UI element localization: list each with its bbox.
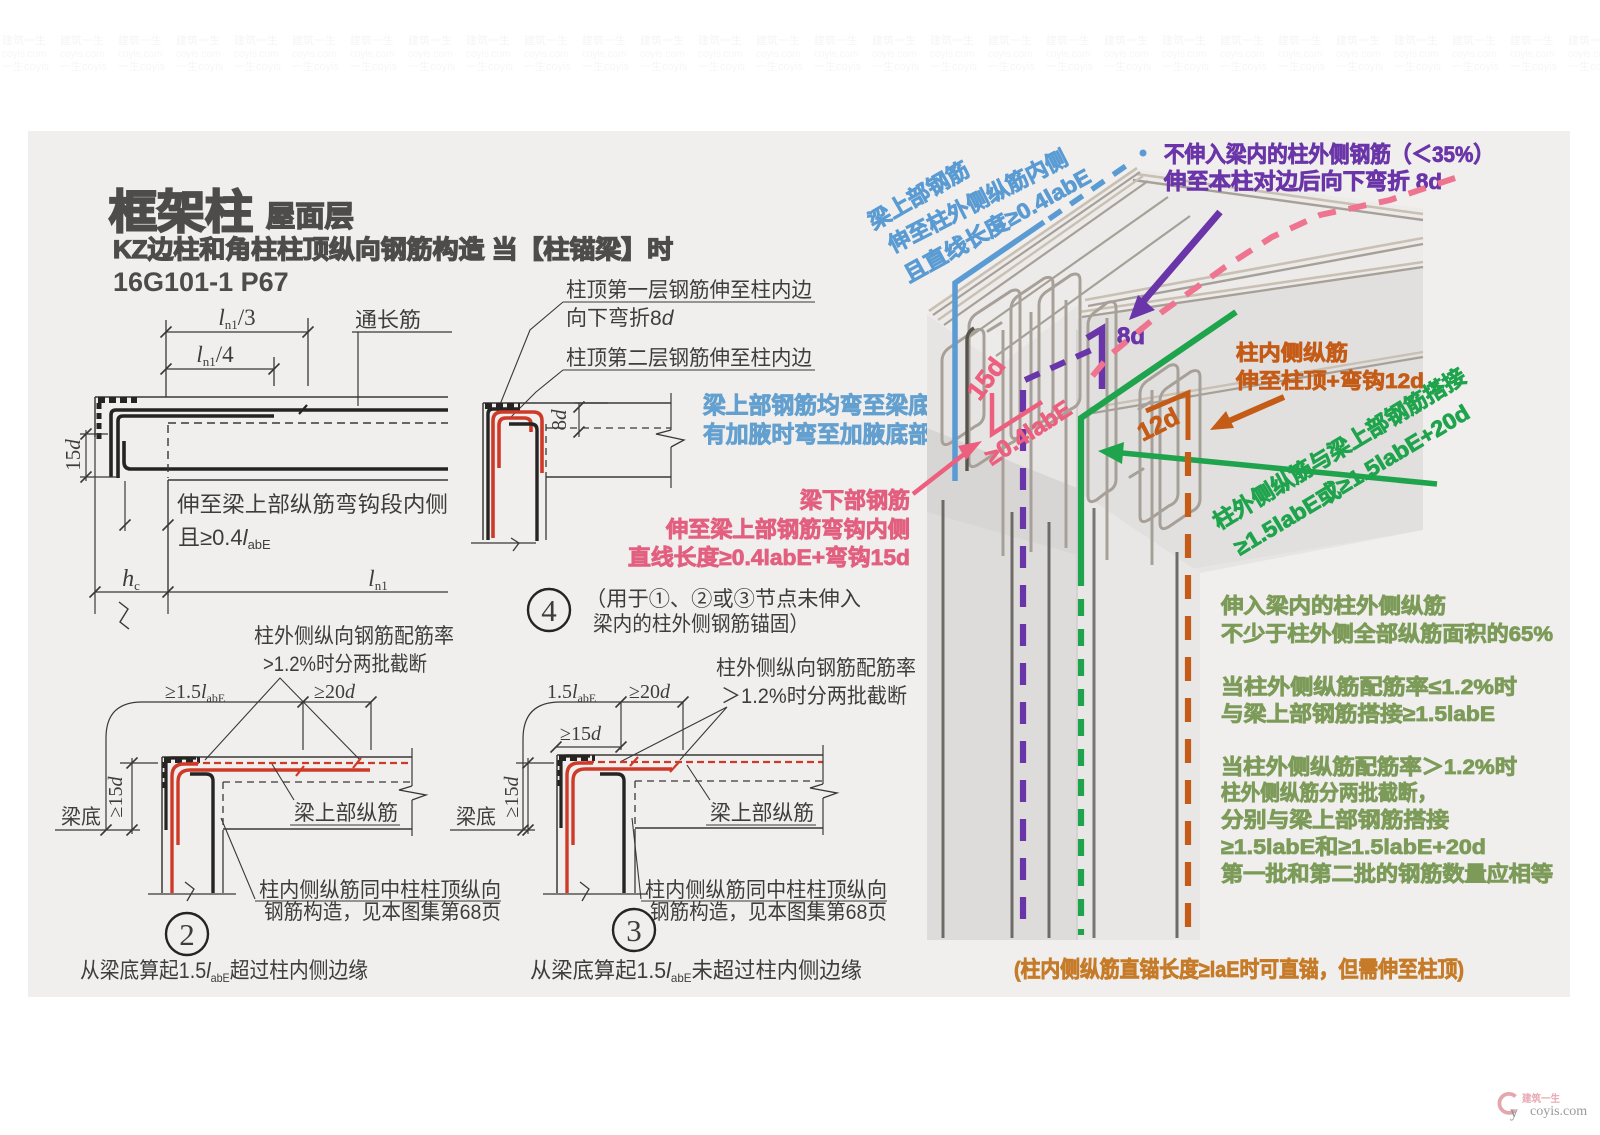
svg-text:15d: 15d: [61, 439, 85, 471]
svg-text:一生coyis: 一生coyis: [1568, 59, 1600, 73]
svg-text:当柱外侧纵筋配筋率≤1.2%时: 当柱外侧纵筋配筋率≤1.2%时: [1221, 675, 1517, 699]
svg-text:柱内侧纵筋: 柱内侧纵筋: [1236, 341, 1348, 365]
svg-text:coyis.com: coyis.com: [698, 49, 742, 60]
svg-text:≥20d: ≥20d: [629, 681, 671, 703]
svg-text:伸至梁上部纵筋弯钩段内侧: 伸至梁上部纵筋弯钩段内侧: [177, 492, 448, 517]
svg-text:建筑一生: 建筑一生: [1510, 33, 1554, 47]
svg-text:coyis.com: coyis.com: [292, 49, 336, 60]
svg-text:有加腋时弯至加腋底部: 有加腋时弯至加腋底部: [703, 421, 931, 447]
svg-text:建筑一生: 建筑一生: [1336, 33, 1380, 47]
svg-text:建筑一生: 建筑一生: [1394, 33, 1438, 47]
svg-text:梁上部纵筋: 梁上部纵筋: [710, 802, 814, 825]
svg-text:建筑一生: 建筑一生: [814, 33, 858, 47]
svg-text:一生coyis: 一生coyis: [118, 59, 166, 73]
svg-text:梁上部钢筋均弯至梁底: 梁上部钢筋均弯至梁底: [702, 392, 931, 418]
svg-text:一生coyis: 一生coyis: [176, 59, 224, 73]
svg-text:coyis.com: coyis.com: [1336, 49, 1380, 60]
svg-text:从梁底算起1.5labE未超过柱内侧边缘: 从梁底算起1.5labE未超过柱内侧边缘: [530, 958, 862, 985]
svg-text:一生coyis: 一生coyis: [466, 59, 514, 73]
svg-text:钢筋构造，见本图集第68页: 钢筋构造，见本图集第68页: [264, 901, 501, 924]
svg-text:coyis.com: coyis.com: [1104, 49, 1148, 60]
svg-text:一生coyis: 一生coyis: [1278, 59, 1326, 73]
svg-text:一生coyis: 一生coyis: [234, 59, 282, 73]
svg-text:不少于柱外侧全部纵筋面积的65%: 不少于柱外侧全部纵筋面积的65%: [1221, 622, 1553, 646]
svg-text:与梁上部钢筋搭接≥1.5labE: 与梁上部钢筋搭接≥1.5labE: [1221, 702, 1495, 726]
svg-text:coyis.com: coyis.com: [234, 49, 278, 60]
svg-text:coyis.com: coyis.com: [1162, 49, 1206, 60]
svg-text:直线长度≥0.4labE+弯钩15d: 直线长度≥0.4labE+弯钩15d: [628, 545, 910, 570]
svg-text:2: 2: [179, 917, 195, 952]
svg-text:coyis.com: coyis.com: [466, 49, 510, 60]
svg-text:当柱外侧纵筋配筋率＞1.2%时: 当柱外侧纵筋配筋率＞1.2%时: [1221, 755, 1517, 779]
svg-text:coyis.com: coyis.com: [524, 49, 568, 60]
svg-text:框架柱: 框架柱: [109, 186, 253, 238]
svg-text:建筑一生: 建筑一生: [292, 33, 336, 47]
svg-text:一生coyis: 一生coyis: [1104, 59, 1152, 73]
svg-text:建筑一生: 建筑一生: [176, 33, 220, 47]
svg-text:coyis.com: coyis.com: [1394, 49, 1438, 60]
svg-text:建筑一生: 建筑一生: [640, 33, 684, 47]
svg-text:≥15d: ≥15d: [560, 723, 602, 745]
svg-text:一生coyis: 一生coyis: [698, 59, 746, 73]
svg-text:建筑一生: 建筑一生: [1220, 33, 1264, 47]
svg-text:梁底: 梁底: [456, 806, 496, 829]
svg-text:coyis.com: coyis.com: [1452, 49, 1496, 60]
svg-text:建筑一生: 建筑一生: [524, 33, 568, 47]
svg-text:建筑一生: 建筑一生: [1278, 33, 1322, 47]
svg-text:>1.2%时分两批截断: >1.2%时分两批截断: [263, 653, 427, 676]
svg-text:coyis.com: coyis.com: [2, 49, 46, 60]
svg-text:建筑一生: 建筑一生: [1104, 33, 1148, 47]
svg-text:柱内侧纵筋同中柱柱顶纵向: 柱内侧纵筋同中柱柱顶纵向: [645, 879, 887, 902]
svg-text:coyis.com: coyis.com: [814, 49, 858, 60]
svg-text:coyis.com: coyis.com: [1220, 49, 1264, 60]
svg-text:KZ边柱和角柱柱顶纵向钢筋构造 当【柱锚梁】时: KZ边柱和角柱柱顶纵向钢筋构造 当【柱锚梁】时: [113, 235, 673, 264]
svg-text:＞1.2%时分两批截断: ＞1.2%时分两批截断: [721, 685, 907, 708]
svg-text:不伸入梁内的柱外侧钢筋（＜35%）: 不伸入梁内的柱外侧钢筋（＜35%）: [1164, 142, 1494, 167]
svg-text:coyis.com: coyis.com: [118, 49, 162, 60]
svg-text:3: 3: [626, 913, 642, 948]
svg-text:coyis.com: coyis.com: [408, 49, 452, 60]
svg-text:建筑一生: 建筑一生: [234, 33, 278, 47]
svg-text:屋面层: 屋面层: [266, 201, 354, 233]
svg-text:coyis.com: coyis.com: [930, 49, 974, 60]
svg-text:建筑一生: 建筑一生: [466, 33, 510, 47]
svg-text:向下弯折8d: 向下弯折8d: [566, 307, 675, 330]
svg-text:coyis.com: coyis.com: [1046, 49, 1090, 60]
svg-text:≥15d: ≥15d: [501, 776, 523, 818]
svg-text:一生coyis: 一生coyis: [582, 59, 630, 73]
svg-text:16G101-1 P67: 16G101-1 P67: [113, 267, 289, 297]
svg-text:建筑一生: 建筑一生: [930, 33, 974, 47]
svg-text:coyis.com: coyis.com: [1530, 1104, 1587, 1119]
svg-text:建筑一生: 建筑一生: [2, 33, 46, 47]
svg-text:建筑一生: 建筑一生: [1568, 33, 1600, 47]
svg-text:一生coyis: 一生coyis: [756, 59, 804, 73]
svg-text:一生coyis: 一生coyis: [930, 59, 978, 73]
svg-text:建筑一生: 建筑一生: [408, 33, 452, 47]
svg-text:ln1/4: ln1/4: [196, 342, 234, 369]
svg-text:ln1/3: ln1/3: [218, 305, 255, 332]
svg-text:建筑一生: 建筑一生: [1452, 33, 1496, 47]
svg-text:建筑一生: 建筑一生: [988, 33, 1032, 47]
svg-text:coyis.com: coyis.com: [988, 49, 1032, 60]
svg-text:一生coyis: 一生coyis: [1162, 59, 1210, 73]
svg-text:coyis.com: coyis.com: [640, 49, 684, 60]
svg-text:一生coyis: 一生coyis: [1046, 59, 1094, 73]
svg-text:柱顶第二层钢筋伸至柱内边: 柱顶第二层钢筋伸至柱内边: [566, 347, 812, 370]
svg-text:建筑一生: 建筑一生: [872, 33, 916, 47]
svg-text:一生coyis: 一生coyis: [524, 59, 572, 73]
svg-text:coyis.com: coyis.com: [872, 49, 916, 60]
svg-text:建筑一生: 建筑一生: [582, 33, 626, 47]
svg-text:coyis.com: coyis.com: [1278, 49, 1322, 60]
svg-text:一生coyis: 一生coyis: [408, 59, 456, 73]
svg-text:8d: 8d: [547, 409, 571, 431]
svg-text:一生coyis: 一生coyis: [292, 59, 340, 73]
svg-text:4: 4: [541, 593, 557, 628]
svg-text:一生coyis: 一生coyis: [2, 59, 50, 73]
svg-text:y: y: [1510, 1104, 1518, 1121]
svg-text:梁底: 梁底: [61, 806, 101, 829]
svg-text:一生coyis: 一生coyis: [350, 59, 398, 73]
svg-text:一生coyis: 一生coyis: [814, 59, 862, 73]
svg-text:建筑一生: 建筑一生: [118, 33, 162, 47]
svg-text:coyis.com: coyis.com: [176, 49, 220, 60]
svg-text:柱顶第一层钢筋伸至柱内边: 柱顶第一层钢筋伸至柱内边: [566, 279, 812, 302]
svg-text:第一批和第二批的钢筋数量应相等: 第一批和第二批的钢筋数量应相等: [1221, 862, 1553, 886]
svg-text:一生coyis: 一生coyis: [1452, 59, 1500, 73]
svg-text:通长筋: 通长筋: [355, 309, 421, 332]
svg-text:（用于①、②或③节点未伸入: （用于①、②或③节点未伸入: [585, 588, 861, 611]
svg-text:一生coyis: 一生coyis: [1336, 59, 1384, 73]
svg-text:(柱内侧纵筋直锚长度≥laE时可直锚，但需伸至柱顶): (柱内侧纵筋直锚长度≥laE时可直锚，但需伸至柱顶): [1014, 957, 1464, 982]
svg-text:coyis.com: coyis.com: [756, 49, 800, 60]
svg-text:建筑一生: 建筑一生: [1162, 33, 1206, 47]
svg-text:coyis.com: coyis.com: [1510, 49, 1554, 60]
svg-text:建筑一生: 建筑一生: [1046, 33, 1090, 47]
svg-text:≥15d: ≥15d: [105, 776, 127, 818]
svg-text:柱外侧纵筋分两批截断，: 柱外侧纵筋分两批截断，: [1221, 781, 1437, 805]
svg-text:一生coyis: 一生coyis: [1394, 59, 1442, 73]
svg-text:伸至梁上部钢筋弯钩内侧: 伸至梁上部钢筋弯钩内侧: [665, 517, 910, 542]
svg-text:钢筋构造，见本图集第68页: 钢筋构造，见本图集第68页: [650, 901, 887, 924]
svg-text:伸至柱顶+弯钩12d: 伸至柱顶+弯钩12d: [1235, 369, 1424, 393]
svg-text:梁内的柱外侧钢筋锚固）: 梁内的柱外侧钢筋锚固）: [593, 613, 809, 636]
svg-text:一生coyis: 一生coyis: [60, 59, 108, 73]
svg-text:建筑一生: 建筑一生: [756, 33, 800, 47]
svg-text:柱外侧纵向钢筋配筋率: 柱外侧纵向钢筋配筋率: [254, 625, 454, 648]
svg-text:一生coyis: 一生coyis: [1220, 59, 1268, 73]
svg-text:建筑一生: 建筑一生: [698, 33, 742, 47]
svg-text:一生coyis: 一生coyis: [988, 59, 1036, 73]
svg-text:coyis.com: coyis.com: [1568, 49, 1600, 60]
svg-text:梁下部钢筋: 梁下部钢筋: [799, 488, 910, 513]
svg-text:≥20d: ≥20d: [314, 681, 356, 703]
svg-text:建筑一生: 建筑一生: [60, 33, 104, 47]
svg-text:柱内侧纵筋同中柱柱顶纵向: 柱内侧纵筋同中柱柱顶纵向: [259, 879, 501, 902]
svg-text:柱外侧纵向钢筋配筋率: 柱外侧纵向钢筋配筋率: [716, 657, 916, 680]
svg-text:建筑一生: 建筑一生: [350, 33, 394, 47]
svg-text:coyis.com: coyis.com: [350, 49, 394, 60]
svg-text:coyis.com: coyis.com: [60, 49, 104, 60]
svg-text:coyis.com: coyis.com: [582, 49, 626, 60]
svg-text:≥1.5labE和≥1.5labE+20d: ≥1.5labE和≥1.5labE+20d: [1221, 836, 1486, 859]
svg-text:分别与梁上部钢筋搭接: 分别与梁上部钢筋搭接: [1221, 808, 1449, 832]
svg-text:伸入梁内的柱外侧纵筋: 伸入梁内的柱外侧纵筋: [1220, 594, 1446, 618]
svg-text:一生coyis: 一生coyis: [640, 59, 688, 73]
svg-text:一生coyis: 一生coyis: [872, 59, 920, 73]
svg-text:一生coyis: 一生coyis: [1510, 59, 1558, 73]
svg-text:伸至本柱对边后向下弯折 8d: 伸至本柱对边后向下弯折 8d: [1163, 169, 1442, 194]
svg-text:梁上部纵筋: 梁上部纵筋: [294, 802, 398, 825]
